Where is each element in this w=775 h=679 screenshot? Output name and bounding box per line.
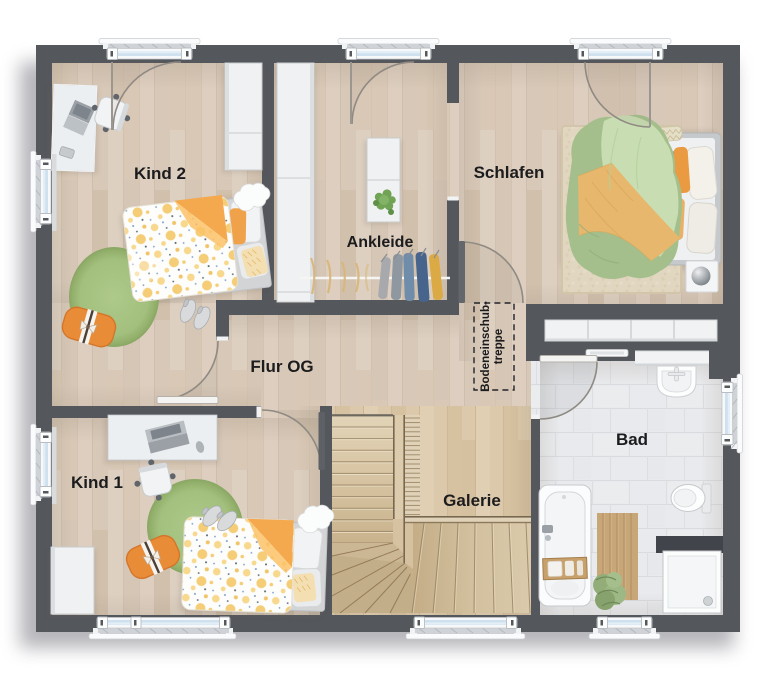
- svg-text:Flur OG: Flur OG: [250, 357, 313, 376]
- svg-text:Kind 2: Kind 2: [134, 164, 186, 183]
- svg-text:Galerie: Galerie: [443, 491, 501, 510]
- svg-text:Bodeneinschub-: Bodeneinschub-: [479, 301, 492, 392]
- svg-text:Kind 1: Kind 1: [71, 473, 123, 492]
- svg-text:Schlafen: Schlafen: [474, 163, 545, 182]
- svg-text:treppe: treppe: [492, 328, 505, 364]
- svg-text:Ankleide: Ankleide: [347, 234, 414, 251]
- svg-text:Bad: Bad: [616, 430, 648, 449]
